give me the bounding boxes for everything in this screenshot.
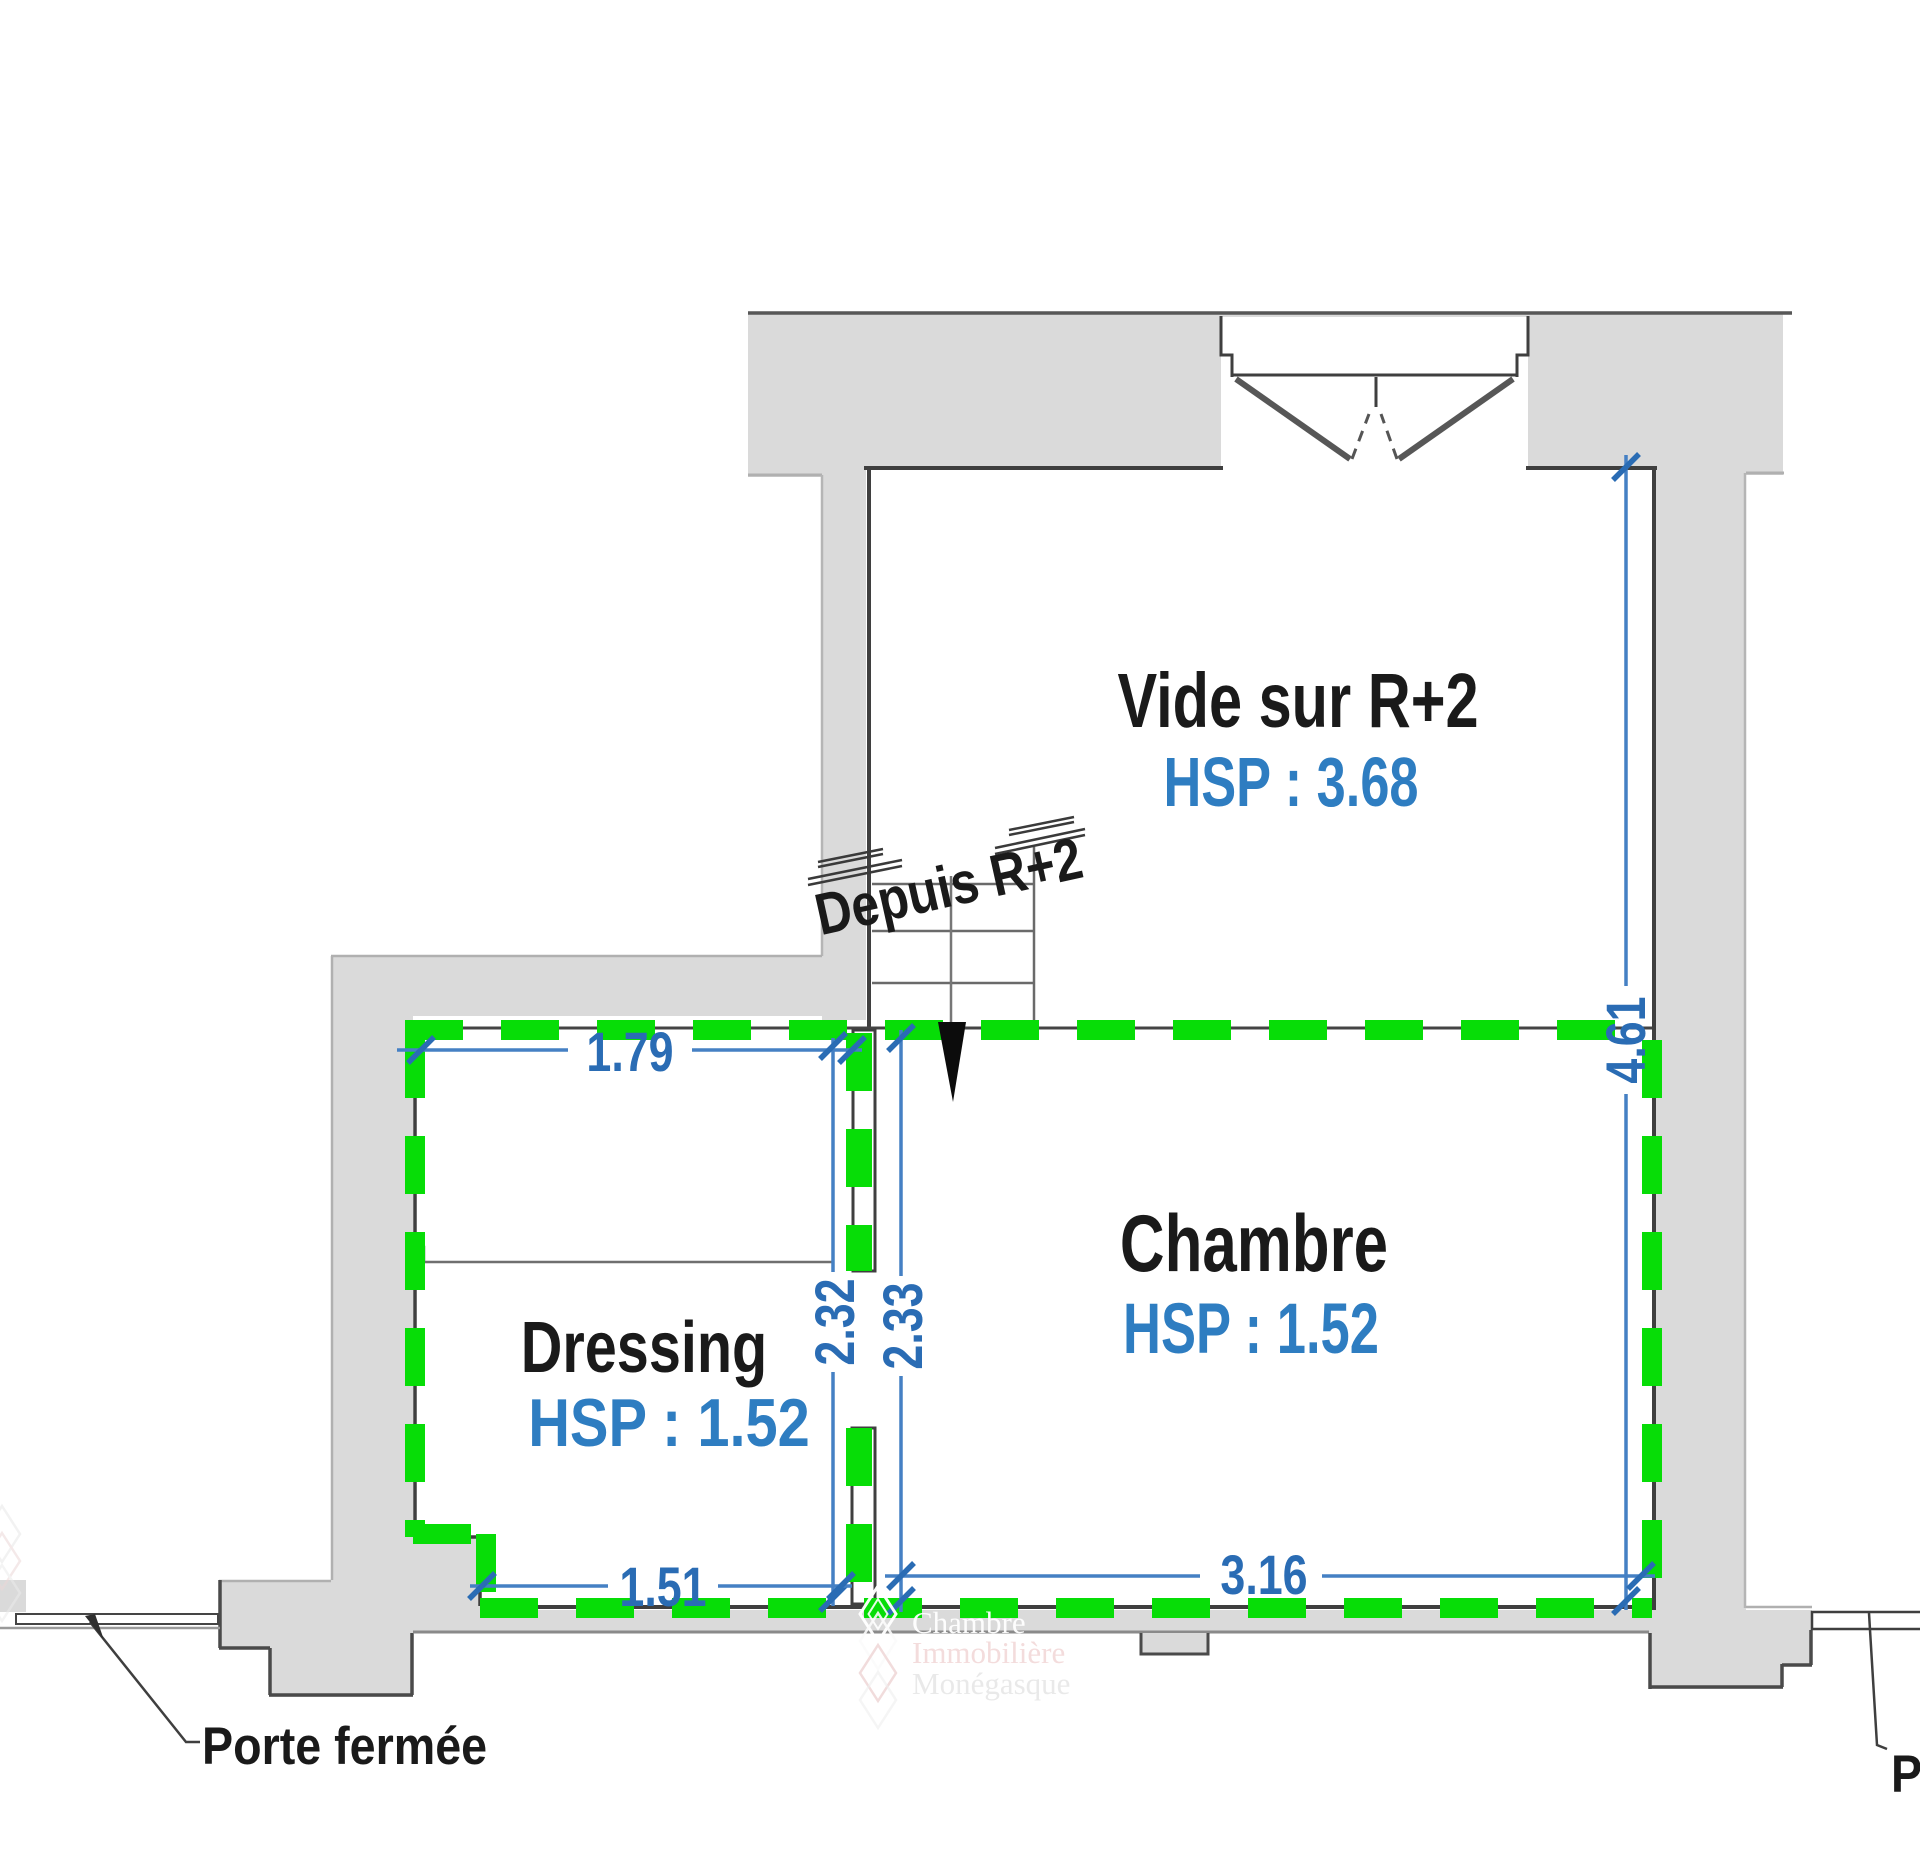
svg-text:Porte: Porte [1891, 1744, 1920, 1803]
svg-text:Immobilière: Immobilière [912, 1635, 1065, 1670]
svg-text:4.61: 4.61 [1594, 996, 1657, 1083]
svg-text:HSP : 3.68: HSP : 3.68 [1163, 744, 1418, 822]
svg-text:HSP : 1.52: HSP : 1.52 [1123, 1289, 1379, 1369]
svg-text:3.16: 3.16 [1220, 1543, 1307, 1606]
svg-text:2.33: 2.33 [871, 1282, 934, 1369]
svg-text:Chambre: Chambre [1120, 1199, 1388, 1289]
svg-text:Dressing: Dressing [521, 1307, 767, 1388]
svg-text:Porte fermée: Porte fermée [202, 1716, 487, 1775]
svg-text:1.79: 1.79 [586, 1020, 673, 1083]
svg-text:HSP : 1.52: HSP : 1.52 [528, 1386, 810, 1461]
svg-text:Vide sur R+2: Vide sur R+2 [1117, 658, 1478, 744]
svg-text:1.51: 1.51 [619, 1555, 706, 1618]
svg-text:2.32: 2.32 [803, 1278, 866, 1365]
svg-text:Monégasque: Monégasque [912, 1666, 1070, 1701]
